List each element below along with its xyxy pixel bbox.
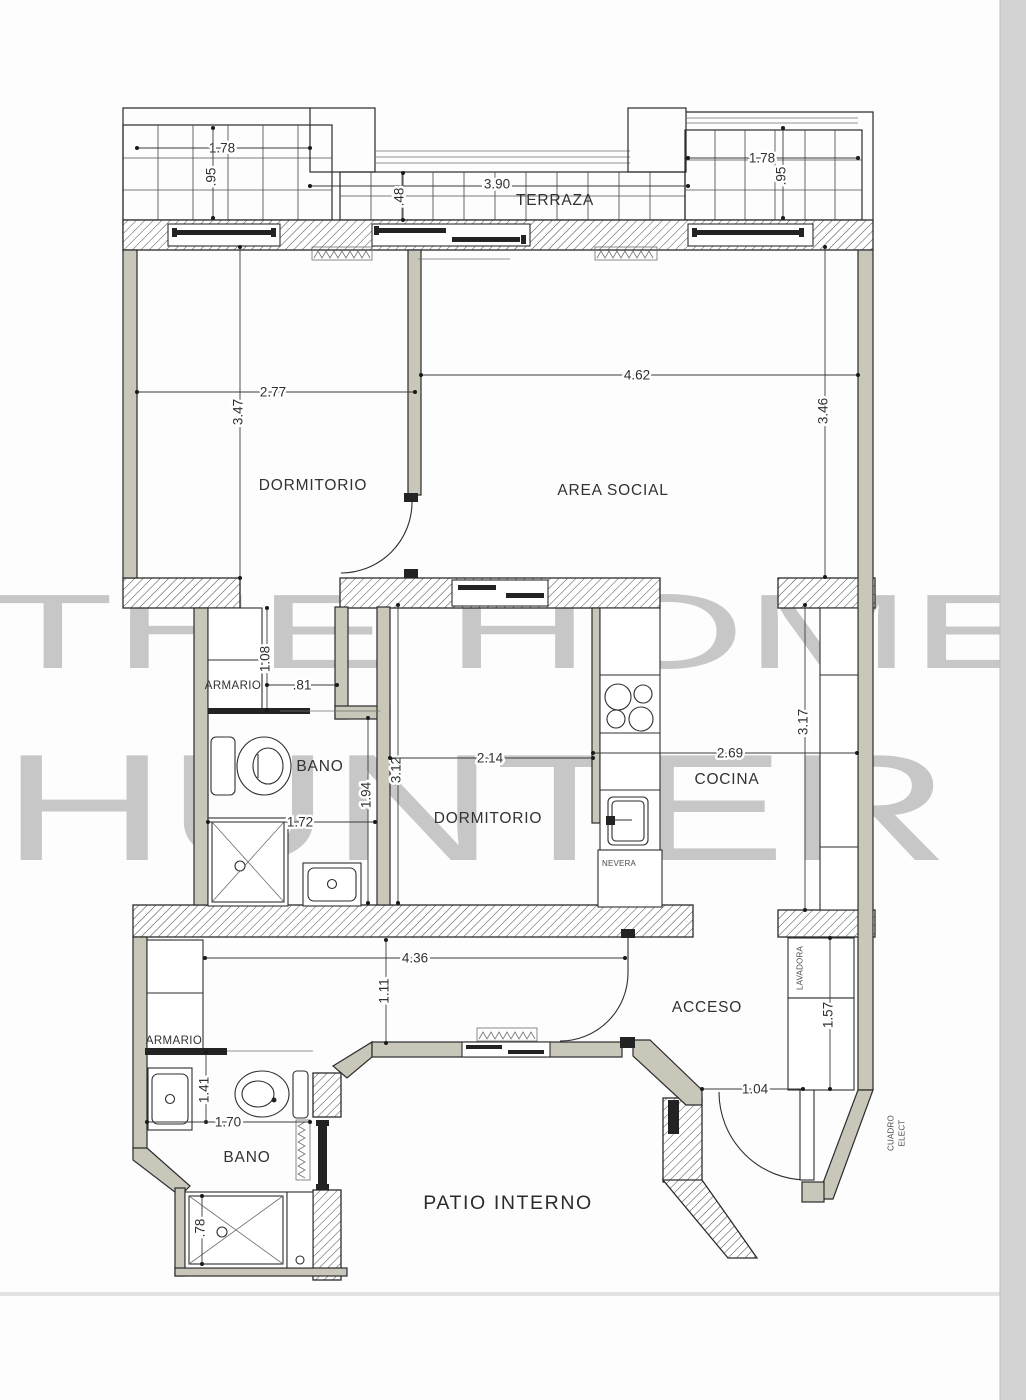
label-cuadro-elect-2: ELECT [898, 1120, 907, 1147]
window-mid-wall [452, 580, 548, 606]
svg-text:3.12: 3.12 [389, 757, 404, 783]
svg-text:.95: .95 [204, 168, 219, 187]
sink-bano2 [148, 1068, 192, 1130]
svg-text:.78: .78 [193, 1219, 208, 1238]
shower-bano1 [208, 818, 288, 906]
svg-text:1.41: 1.41 [197, 1077, 212, 1103]
label-cocina: COCINA [694, 771, 759, 788]
svg-text:4.36: 4.36 [402, 951, 428, 966]
toilet-bano1 [211, 737, 291, 795]
label-dormitorio1: DORMITORIO [259, 477, 367, 494]
svg-text:3.90: 3.90 [484, 177, 510, 192]
watermark-line2: HUNTER [2, 723, 950, 893]
svg-text:1.11: 1.11 [377, 978, 392, 1003]
patio-wall-colB [313, 1190, 341, 1280]
kitchen-counter-right [820, 608, 858, 910]
lower-wall [133, 905, 693, 937]
label-armario2: ARMARIO [146, 1035, 202, 1047]
label-bano1: BANO [296, 758, 343, 775]
svg-text:3.17: 3.17 [796, 709, 811, 735]
window-left [168, 224, 280, 246]
svg-text:1.72: 1.72 [287, 815, 313, 830]
sink-bano1 [303, 863, 361, 906]
svg-text:4.62: 4.62 [624, 368, 650, 383]
svg-text:.95: .95 [774, 167, 789, 186]
terrace-sliding-door [372, 224, 530, 246]
label-cuadro-elect-1: CUADRO [887, 1115, 896, 1151]
svg-text:1.08: 1.08 [258, 646, 273, 672]
label-terraza: TERRAZA [516, 192, 594, 209]
svg-text:3.46: 3.46 [816, 398, 831, 424]
svg-text:1.04: 1.04 [742, 1082, 769, 1097]
label-area-social: AREA SOCIAL [557, 482, 668, 499]
label-armario1: ARMARIO [205, 680, 261, 692]
svg-text:.48: .48 [392, 188, 407, 207]
floor-plan-svg: THE HOME HUNTER [0, 0, 1026, 1400]
label-patio-interno: PATIO INTERNO [423, 1192, 593, 1214]
label-dormitorio2: DORMITORIO [434, 810, 542, 827]
svg-text:1.94: 1.94 [359, 781, 374, 808]
window-right [688, 224, 813, 246]
kitchen-counter-left: NEVERA [598, 608, 662, 907]
patio-wall-colA [313, 1073, 341, 1117]
svg-text:.81: .81 [293, 678, 312, 693]
svg-text:2.77: 2.77 [260, 385, 286, 400]
scanned-floor-plan-page: THE HOME HUNTER [0, 0, 1026, 1400]
toilet-bano2 [235, 1071, 308, 1118]
label-bano2: BANO [223, 1149, 270, 1166]
svg-text:2.14: 2.14 [477, 751, 504, 766]
svg-text:2.69: 2.69 [717, 746, 743, 761]
fridge: NEVERA [598, 850, 662, 907]
page-right-edge [1000, 0, 1026, 1400]
lavadora-label: LAVADORA [796, 946, 805, 990]
nevera-label: NEVERA [602, 859, 637, 868]
svg-text:1.78: 1.78 [749, 151, 775, 166]
label-acceso: ACCESO [672, 999, 742, 1016]
svg-text:3.47: 3.47 [231, 399, 246, 425]
svg-text:1.70: 1.70 [215, 1115, 241, 1130]
mid-wall-left [123, 578, 240, 608]
svg-text:1.57: 1.57 [821, 1002, 836, 1028]
